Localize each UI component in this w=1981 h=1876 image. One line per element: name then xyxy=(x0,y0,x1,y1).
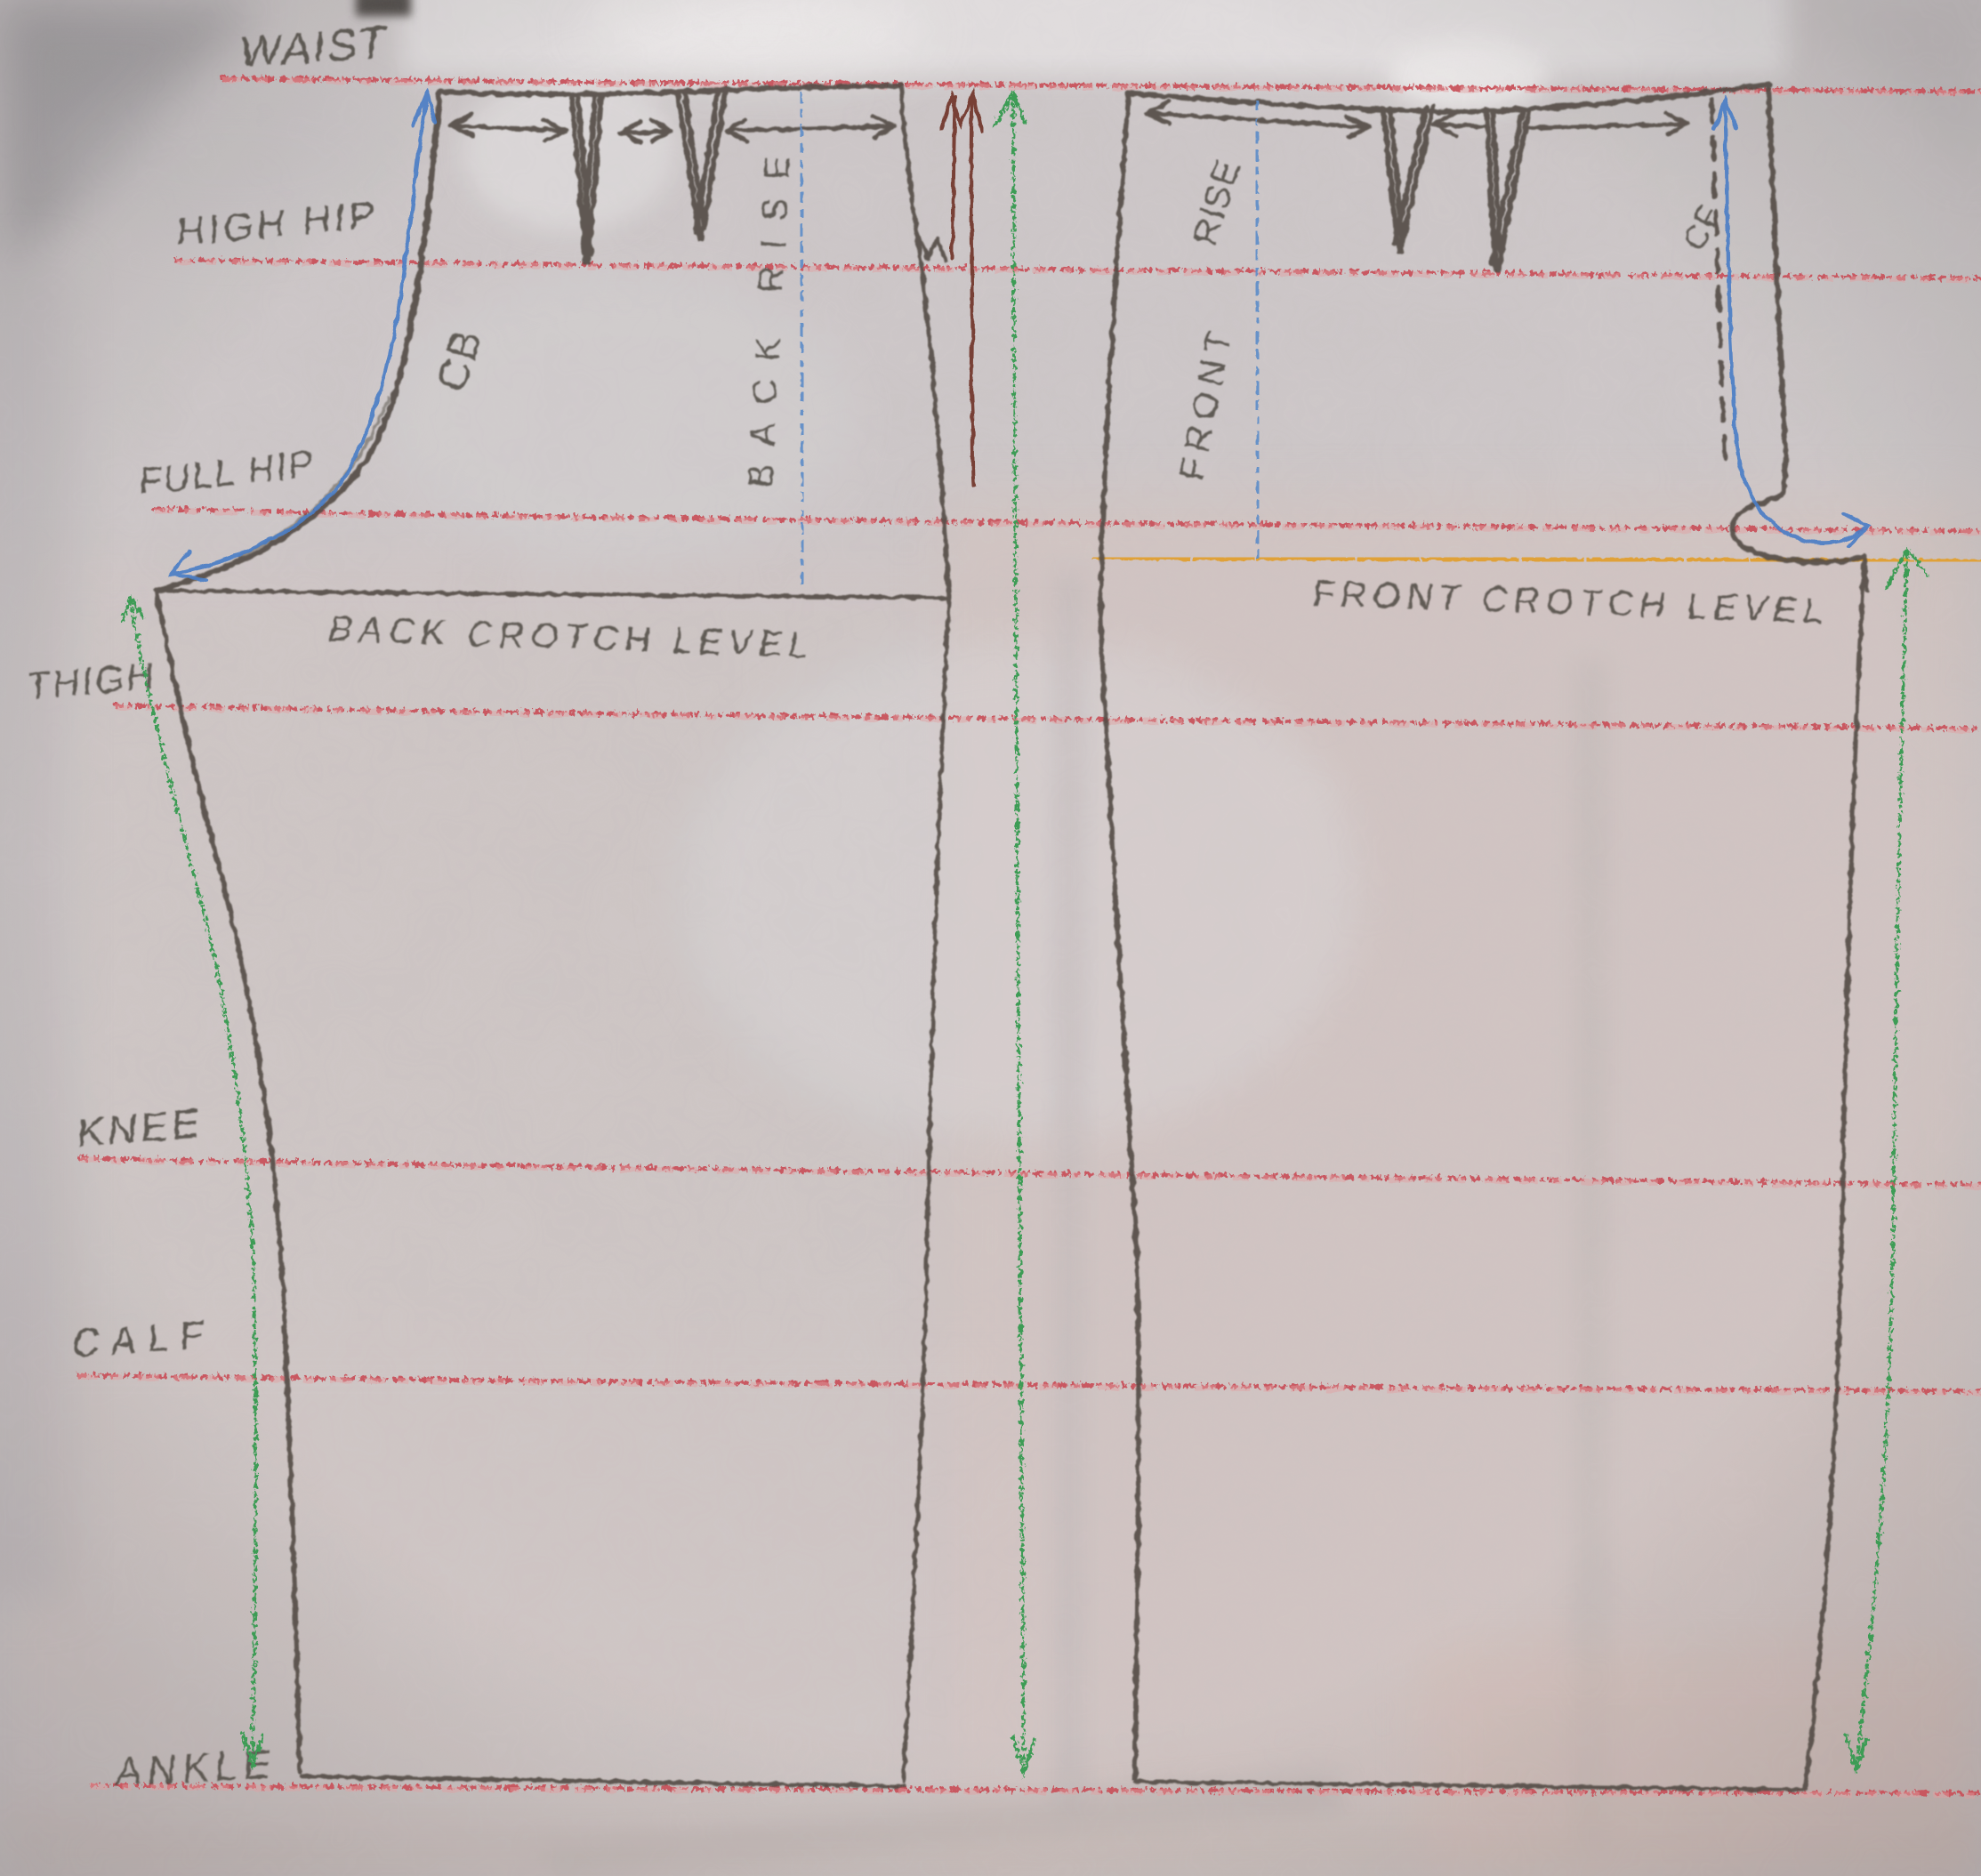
svg-text:WAIST: WAIST xyxy=(238,16,391,77)
